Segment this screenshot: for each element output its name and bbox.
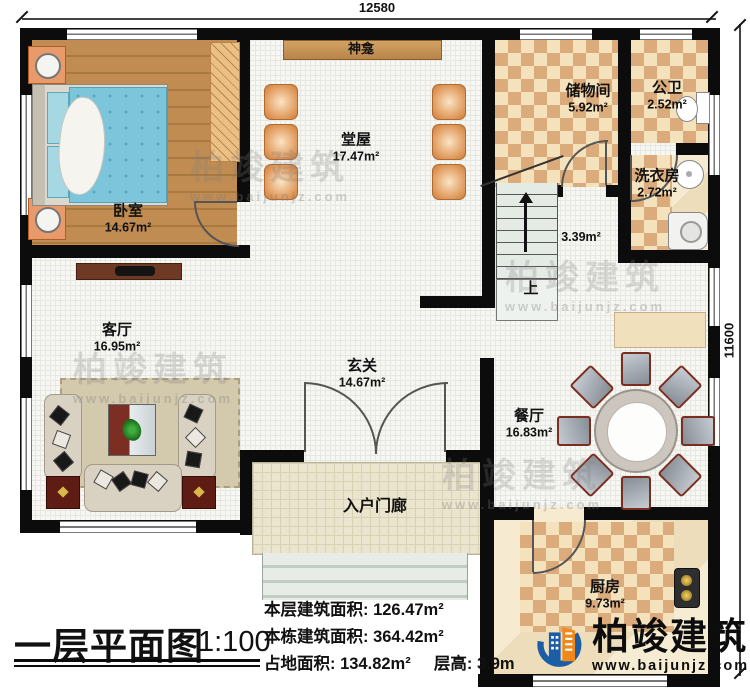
plan-scale: 1:100 [198,626,271,659]
room-label-foyer: 玄关 14.67m² [339,359,386,390]
dining-chair [681,416,715,446]
burner-icon [681,590,692,601]
stat-floor-height: 层高: 3.9m [434,655,515,673]
dining-table-top [607,402,667,462]
drain-icon [686,171,692,177]
floor-plan-page: 12580 11600 [0,0,750,689]
hall-chair [432,84,466,120]
stairs-direction-arrow [524,200,527,252]
hall-chair [432,124,466,160]
bed [32,84,168,206]
hall-chair [264,84,298,120]
room-label-laundry: 洗衣房 2.72m² [634,169,679,200]
plant-icon [119,417,146,444]
hall-chair [264,124,298,160]
tv-cabinet [76,263,182,280]
room-label-storage: 储物间 5.92m² [565,84,610,115]
stat-land-area: 占地面积: 134.82m² [264,655,411,673]
toilet-tank [696,92,710,124]
dining-chair [557,416,591,446]
stairs-up-label: 上 [523,280,538,297]
star-icon [57,486,68,497]
washing-machine [668,212,708,250]
bathroom-door-leaf [630,155,632,200]
window [60,521,196,533]
window [21,285,32,357]
lamp-icon [35,53,61,79]
brand-name: 柏竣建筑 [592,618,749,655]
wall [618,143,631,155]
dining-table [594,389,678,473]
gas-stove [674,568,700,608]
entry-door-leaf [304,382,306,452]
storage-door-leaf [605,140,607,185]
hall-chair [264,164,298,200]
window [709,268,720,326]
wall [240,450,252,535]
window [21,398,32,490]
wall [20,245,250,258]
window [21,95,32,215]
title-underline [14,659,260,662]
room-label-living: 客厅 16.95m² [94,323,141,354]
window [67,29,197,40]
wall [494,507,534,520]
dining-chair [621,352,651,386]
entry-door-leaf [444,382,446,452]
wall [446,450,482,462]
window [709,95,720,175]
side-table [182,476,216,509]
bed-headboard [33,85,45,205]
room-label-porch: 入户门廊 [343,498,407,516]
star-icon [193,486,204,497]
brand-logo: 柏竣建筑 www.baijunjz.com [530,618,749,674]
wardrobe [210,42,240,162]
wall [482,40,495,308]
washer-door-icon [680,221,702,243]
dining-chair [621,476,651,510]
title-underline [14,665,260,667]
side-table [46,476,80,509]
room-label-dining: 餐厅 16.83m² [506,409,553,440]
cushion [185,451,202,468]
stair-hall-area: 3.39m² [561,230,601,244]
coffee-table [108,404,156,456]
stairs-arrow-head [519,192,533,203]
room-label-bedroom: 卧室 14.67m² [105,204,152,235]
hall-chair [432,164,466,200]
porch-steps [262,553,468,600]
dimension-right-label: 11600 [722,312,737,370]
room-label-bathroom: 公卫 2.52m² [647,81,687,112]
room-label-kitchen: 厨房 9.73m² [585,580,625,611]
window [640,29,692,40]
bedroom-door-leaf [194,201,237,203]
area-stats: 本层建筑面积: 126.47m² 本栋建筑面积: 364.42m² 占地面积: … [264,597,515,678]
stat-building-area: 本栋建筑面积: 364.42m² [264,624,515,651]
window [520,29,592,40]
dimension-top-line [22,18,716,20]
dimension-right-line [739,24,741,676]
wall [420,296,495,308]
shrine-label: 神龛 [348,41,374,56]
sideboard [614,312,706,348]
brand-logo-icon [530,618,584,672]
nightstand [28,46,66,84]
wall [618,250,720,263]
wall [618,40,631,143]
tv-icon [115,266,155,276]
room-label-hall: 堂屋 17.47m² [333,133,380,164]
dimension-top-label: 12580 [340,0,414,15]
dimension-tick [706,11,719,24]
burner-icon [681,575,692,586]
brand-website: www.baijunjz.com [592,658,749,674]
dimension-tick [16,11,29,24]
kitchen-door-leaf [532,520,534,572]
stat-floor-area: 本层建筑面积: 126.47m² [264,597,515,624]
window [533,675,667,687]
lamp-icon [35,207,61,233]
